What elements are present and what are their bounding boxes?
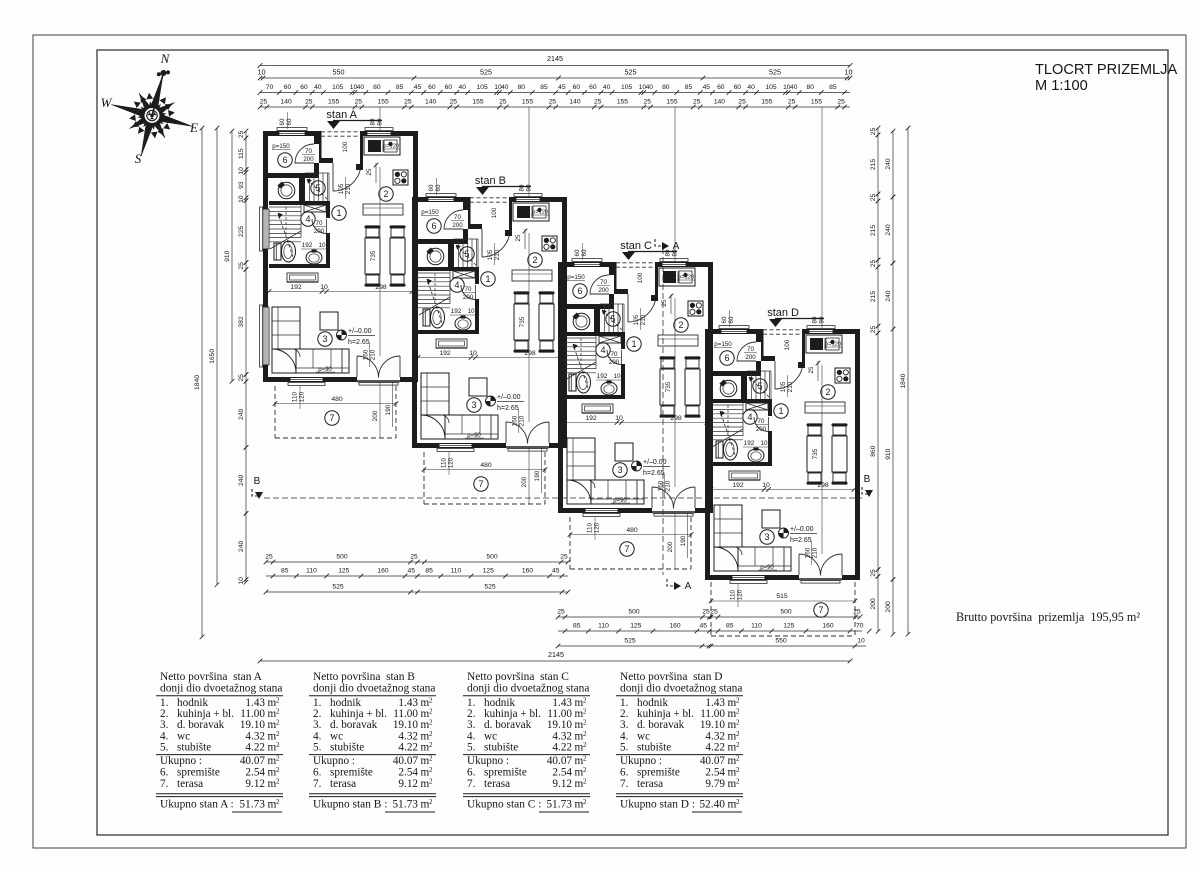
svg-text:7: 7	[818, 605, 823, 615]
svg-text:10: 10	[845, 68, 853, 77]
svg-text:donji dio dvoetažnog stana: donji dio dvoetažnog stana	[160, 683, 282, 695]
svg-text:40.07: 40.07	[547, 755, 573, 767]
svg-text:5.: 5.	[467, 741, 476, 753]
svg-text:2145: 2145	[548, 650, 564, 659]
svg-text:105: 105	[765, 84, 776, 91]
svg-text:215: 215	[870, 225, 877, 236]
svg-text:155: 155	[761, 99, 772, 106]
svg-text:Ukupno :: Ukupno :	[620, 755, 662, 767]
svg-text:6.: 6.	[467, 767, 476, 779]
svg-text:155: 155	[328, 99, 339, 106]
svg-text:240: 240	[238, 475, 245, 486]
svg-text:Brutto površina prizemlja 19: Brutto površina prizemlja 195,95 m²	[956, 610, 1140, 624]
svg-text:stubište: stubište	[484, 741, 518, 753]
svg-text:2.54: 2.54	[398, 767, 418, 779]
svg-text:7.: 7.	[467, 778, 476, 790]
svg-text:1840: 1840	[900, 373, 907, 388]
svg-text:25: 25	[238, 130, 245, 138]
svg-text:110: 110	[306, 568, 317, 575]
svg-text:110: 110	[598, 623, 609, 630]
svg-text:2: 2	[276, 741, 280, 749]
svg-text:140: 140	[569, 99, 580, 106]
svg-text:60: 60	[728, 316, 735, 323]
svg-text:25: 25	[238, 374, 245, 382]
svg-text:120: 120	[737, 589, 744, 600]
svg-text:155: 155	[617, 99, 628, 106]
svg-text:B: B	[864, 474, 871, 485]
svg-text:spremište: spremište	[484, 767, 527, 779]
svg-text:2: 2	[429, 697, 433, 705]
svg-text:stan C: stan C	[620, 240, 652, 252]
svg-text:S: S	[135, 151, 142, 166]
svg-text:9.12: 9.12	[552, 778, 572, 790]
svg-text:1840: 1840	[194, 375, 201, 390]
svg-text:2: 2	[736, 755, 740, 763]
svg-text:40: 40	[646, 84, 654, 91]
svg-text:85: 85	[726, 623, 734, 630]
svg-text:60: 60	[428, 184, 435, 191]
svg-text:40: 40	[501, 84, 509, 91]
svg-text:2: 2	[276, 798, 280, 806]
svg-text:515: 515	[776, 593, 788, 600]
svg-text:2: 2	[429, 719, 433, 727]
svg-text:2: 2	[276, 697, 280, 705]
svg-text:40.07: 40.07	[240, 755, 266, 767]
svg-text:525: 525	[625, 68, 637, 77]
svg-text:2: 2	[429, 778, 433, 786]
svg-text:240: 240	[885, 224, 892, 235]
svg-text:80: 80	[662, 84, 670, 91]
svg-text:M 1:100: M 1:100	[1035, 78, 1088, 94]
svg-text:25: 25	[738, 99, 746, 106]
svg-text:60: 60	[574, 249, 581, 256]
svg-text:6.: 6.	[313, 767, 322, 779]
svg-text:7.: 7.	[313, 778, 322, 790]
svg-text:25: 25	[260, 99, 268, 106]
svg-text:215: 215	[870, 159, 877, 170]
svg-text:donji dio dvoetažnog stana: donji dio dvoetažnog stana	[313, 683, 435, 695]
svg-text:200: 200	[870, 598, 877, 609]
svg-text:stubište: stubište	[177, 741, 211, 753]
svg-text:25: 25	[549, 99, 557, 106]
svg-text:2.54: 2.54	[552, 767, 572, 779]
svg-text:240: 240	[885, 158, 892, 169]
svg-text:60: 60	[284, 84, 292, 91]
svg-text:60: 60	[734, 84, 742, 91]
svg-text:160: 160	[669, 623, 680, 630]
svg-text:2: 2	[583, 755, 587, 763]
svg-text:25: 25	[410, 554, 418, 561]
svg-text:stan B: stan B	[475, 175, 506, 187]
svg-text:80: 80	[519, 184, 526, 191]
svg-text:60: 60	[279, 118, 286, 125]
svg-text:2: 2	[276, 766, 280, 774]
svg-text:125: 125	[483, 568, 494, 575]
svg-text:2: 2	[583, 778, 587, 786]
svg-text:2: 2	[276, 708, 280, 716]
svg-text:2: 2	[583, 730, 587, 738]
svg-text:525: 525	[332, 584, 344, 591]
svg-text:110: 110	[730, 589, 737, 600]
svg-text:125: 125	[630, 623, 641, 630]
svg-text:155: 155	[378, 99, 389, 106]
svg-text:25: 25	[265, 554, 273, 561]
svg-text:40.07: 40.07	[700, 755, 726, 767]
svg-text:stubište: stubište	[330, 741, 364, 753]
svg-text:80: 80	[665, 249, 672, 256]
svg-text:110: 110	[451, 568, 462, 575]
svg-text:200: 200	[885, 601, 892, 612]
svg-text:85: 85	[281, 568, 289, 575]
svg-text:25: 25	[450, 99, 458, 106]
svg-text:2: 2	[583, 708, 587, 716]
svg-text:25: 25	[837, 99, 845, 106]
svg-text:10: 10	[258, 68, 266, 77]
svg-text:60: 60	[300, 84, 308, 91]
svg-text:51.73: 51.73	[546, 799, 572, 811]
svg-text:215: 215	[870, 291, 877, 302]
svg-text:140: 140	[425, 99, 436, 106]
svg-text:2: 2	[429, 766, 433, 774]
svg-text:500: 500	[486, 554, 497, 561]
svg-text:Ukupno :: Ukupno :	[313, 755, 355, 767]
svg-text:Ukupno stan A :: Ukupno stan A :	[160, 799, 234, 811]
svg-text:Netto površina stan C: Netto površina stan C	[467, 671, 569, 683]
svg-text:51.73: 51.73	[392, 799, 418, 811]
svg-text:45: 45	[414, 84, 422, 91]
svg-text:2: 2	[429, 708, 433, 716]
svg-text:40: 40	[357, 84, 365, 91]
svg-text:4.22: 4.22	[245, 741, 265, 753]
svg-text:10: 10	[238, 195, 245, 203]
svg-text:stubište: stubište	[637, 741, 671, 753]
svg-text:2145: 2145	[547, 54, 563, 63]
svg-text:550: 550	[775, 638, 787, 645]
svg-text:W: W	[101, 95, 113, 110]
svg-text:stan A: stan A	[326, 109, 357, 121]
svg-text:105: 105	[332, 84, 343, 91]
svg-text:5.: 5.	[620, 741, 629, 753]
svg-text:45: 45	[703, 84, 711, 91]
svg-text:2: 2	[736, 766, 740, 774]
svg-text:45: 45	[552, 568, 560, 575]
svg-text:2: 2	[583, 697, 587, 705]
svg-text:40: 40	[458, 84, 466, 91]
svg-text:Ukupno stan D :: Ukupno stan D :	[620, 799, 695, 811]
svg-text:140: 140	[714, 99, 725, 106]
svg-text:1650: 1650	[209, 349, 216, 364]
svg-text:2: 2	[429, 730, 433, 738]
svg-text:2: 2	[276, 778, 280, 786]
svg-text:2: 2	[583, 741, 587, 749]
svg-text:25: 25	[499, 99, 507, 106]
svg-text:51.73: 51.73	[239, 799, 265, 811]
svg-text:N: N	[160, 51, 171, 66]
svg-text:9.12: 9.12	[245, 778, 265, 790]
svg-text:500: 500	[628, 609, 639, 616]
svg-text:10: 10	[238, 167, 245, 175]
svg-text:25: 25	[870, 326, 877, 334]
svg-text:60: 60	[286, 118, 293, 125]
svg-text:25: 25	[870, 569, 877, 577]
svg-text:5.: 5.	[160, 741, 169, 753]
svg-text:500: 500	[780, 609, 791, 616]
svg-text:160: 160	[377, 568, 388, 575]
svg-text:25: 25	[702, 609, 710, 616]
svg-text:140: 140	[281, 99, 292, 106]
svg-text:TLOCRT PRIZEMLJA: TLOCRT PRIZEMLJA	[1035, 62, 1177, 78]
svg-text:4.22: 4.22	[398, 741, 418, 753]
svg-text:2: 2	[583, 798, 587, 806]
svg-text:10: 10	[238, 577, 245, 585]
svg-text:45: 45	[558, 84, 566, 91]
svg-text:stan D: stan D	[767, 307, 799, 319]
svg-text:2: 2	[736, 697, 740, 705]
svg-text:160: 160	[522, 568, 533, 575]
svg-text:terasa: terasa	[177, 778, 203, 790]
svg-text:A: A	[673, 241, 680, 252]
svg-text:110: 110	[751, 623, 762, 630]
svg-text:Netto površina stan D: Netto površina stan D	[620, 671, 723, 683]
svg-text:2: 2	[429, 798, 433, 806]
svg-text:550: 550	[333, 68, 345, 77]
svg-text:25: 25	[557, 609, 565, 616]
svg-text:105: 105	[621, 84, 632, 91]
svg-text:B: B	[254, 476, 261, 487]
svg-text:E: E	[189, 120, 198, 135]
svg-text:45: 45	[699, 623, 707, 630]
svg-text:860: 860	[870, 445, 877, 456]
svg-text:2: 2	[429, 741, 433, 749]
svg-text:donji dio dvoetažnog stana: donji dio dvoetažnog stana	[467, 683, 589, 695]
svg-text:5.: 5.	[313, 741, 322, 753]
svg-text:60: 60	[573, 84, 581, 91]
svg-text:25: 25	[870, 127, 877, 135]
svg-text:Ukupno :: Ukupno :	[467, 755, 509, 767]
svg-text:105: 105	[477, 84, 488, 91]
svg-text:60: 60	[589, 84, 597, 91]
svg-text:7.: 7.	[620, 778, 629, 790]
svg-text:80: 80	[518, 84, 526, 91]
svg-text:525: 525	[624, 638, 636, 645]
svg-text:25: 25	[404, 99, 412, 106]
svg-text:155: 155	[666, 99, 677, 106]
svg-text:25: 25	[643, 99, 651, 106]
svg-text:125: 125	[783, 623, 794, 630]
svg-text:60: 60	[717, 84, 725, 91]
svg-text:85: 85	[396, 84, 404, 91]
svg-text:7.: 7.	[160, 778, 169, 790]
svg-text:40: 40	[314, 84, 322, 91]
svg-text:A: A	[685, 581, 692, 592]
svg-text:2: 2	[276, 730, 280, 738]
svg-text:80: 80	[370, 118, 377, 125]
svg-text:25: 25	[594, 99, 602, 106]
svg-text:40: 40	[790, 84, 798, 91]
svg-text:240: 240	[238, 409, 245, 420]
svg-text:2: 2	[736, 798, 740, 806]
svg-text:6.: 6.	[620, 767, 629, 779]
svg-text:155: 155	[811, 99, 822, 106]
svg-text:60: 60	[435, 184, 442, 191]
svg-text:2.54: 2.54	[705, 767, 725, 779]
svg-text:910: 910	[224, 250, 231, 261]
svg-text:terasa: terasa	[637, 778, 663, 790]
svg-text:terasa: terasa	[484, 778, 510, 790]
svg-text:225: 225	[238, 226, 245, 237]
svg-text:125: 125	[338, 568, 349, 575]
svg-text:85: 85	[829, 84, 837, 91]
svg-text:25: 25	[870, 194, 877, 202]
svg-text:2: 2	[736, 730, 740, 738]
svg-text:25: 25	[355, 99, 363, 106]
svg-text:2: 2	[276, 719, 280, 727]
svg-text:80: 80	[812, 316, 819, 323]
svg-text:2: 2	[276, 755, 280, 763]
svg-text:525: 525	[769, 68, 781, 77]
svg-text:25: 25	[853, 609, 861, 616]
svg-text:85: 85	[685, 84, 693, 91]
svg-text:4.22: 4.22	[705, 741, 725, 753]
svg-text:2: 2	[583, 766, 587, 774]
svg-text:85: 85	[425, 568, 433, 575]
svg-text:spremište: spremište	[330, 767, 373, 779]
svg-text:25: 25	[560, 554, 568, 561]
svg-text:10: 10	[857, 638, 865, 645]
svg-text:93: 93	[238, 181, 245, 189]
svg-text:donji dio dvoetažnog stana: donji dio dvoetažnog stana	[620, 683, 742, 695]
svg-text:500: 500	[336, 554, 347, 561]
svg-text:70: 70	[856, 623, 864, 630]
svg-text:155: 155	[472, 99, 483, 106]
svg-text:115: 115	[238, 148, 245, 159]
svg-text:60: 60	[721, 316, 728, 323]
svg-text:2: 2	[736, 719, 740, 727]
svg-text:spremište: spremište	[177, 767, 220, 779]
svg-text:9.79: 9.79	[705, 778, 725, 790]
svg-text:240: 240	[238, 541, 245, 552]
svg-text:2: 2	[736, 708, 740, 716]
svg-text:525: 525	[480, 68, 492, 77]
svg-text:80: 80	[806, 84, 814, 91]
svg-text:40: 40	[747, 84, 755, 91]
svg-text:25: 25	[305, 99, 313, 106]
svg-text:terasa: terasa	[330, 778, 356, 790]
svg-text:Netto površina stan A: Netto površina stan A	[160, 671, 263, 683]
svg-text:155: 155	[522, 99, 533, 106]
svg-text:Netto površina stan B: Netto površina stan B	[313, 671, 415, 683]
svg-text:6.: 6.	[160, 767, 169, 779]
svg-text:60: 60	[445, 84, 453, 91]
svg-text:60: 60	[428, 84, 436, 91]
svg-text:4.22: 4.22	[552, 741, 572, 753]
svg-text:70: 70	[266, 84, 274, 91]
svg-text:25: 25	[238, 262, 245, 270]
svg-text:Ukupno :: Ukupno :	[160, 755, 202, 767]
svg-text:525: 525	[484, 584, 496, 591]
svg-text:382: 382	[238, 316, 245, 327]
svg-text:85: 85	[540, 84, 548, 91]
svg-text:910: 910	[885, 448, 892, 459]
svg-text:160: 160	[822, 623, 833, 630]
svg-text:spremište: spremište	[637, 767, 680, 779]
svg-text:2: 2	[429, 755, 433, 763]
svg-text:60: 60	[581, 249, 588, 256]
svg-text:85: 85	[573, 623, 581, 630]
svg-text:2: 2	[736, 741, 740, 749]
svg-text:25: 25	[710, 609, 718, 616]
svg-text:80: 80	[373, 84, 381, 91]
svg-text:Ukupno stan B :: Ukupno stan B :	[313, 799, 387, 811]
svg-text:40: 40	[603, 84, 611, 91]
svg-text:9.12: 9.12	[398, 778, 418, 790]
svg-text:25: 25	[788, 99, 796, 106]
svg-text:Ukupno stan C :: Ukupno stan C :	[467, 799, 541, 811]
svg-text:2: 2	[583, 719, 587, 727]
svg-text:2: 2	[736, 778, 740, 786]
svg-text:52.40: 52.40	[699, 799, 725, 811]
svg-text:40.07: 40.07	[393, 755, 419, 767]
svg-text:45: 45	[407, 568, 415, 575]
svg-text:240: 240	[885, 290, 892, 301]
svg-text:25: 25	[693, 99, 701, 106]
svg-text:25: 25	[870, 260, 877, 268]
svg-text:2.54: 2.54	[245, 767, 265, 779]
